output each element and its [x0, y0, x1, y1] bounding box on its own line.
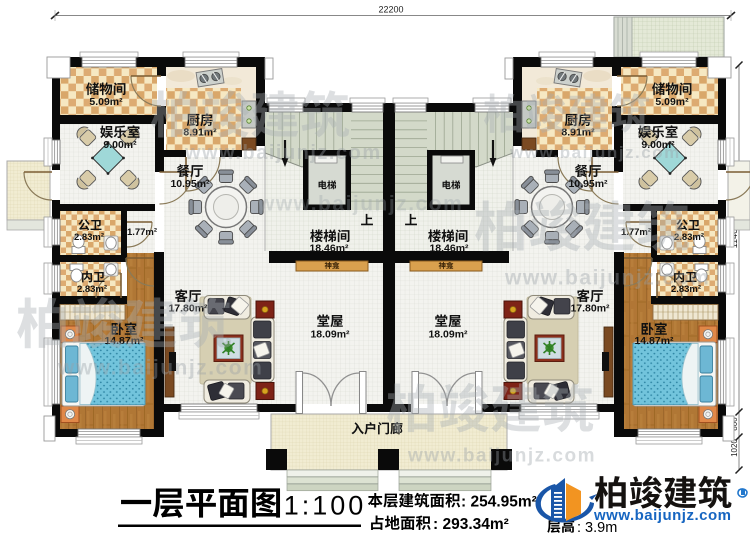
svg-text:18.09m²: 18.09m² — [428, 329, 468, 341]
svg-text:www.baijunjz.com: www.baijunjz.com — [257, 192, 463, 215]
svg-text:18.46m²: 18.46m² — [309, 243, 349, 255]
svg-text:2.83m²: 2.83m² — [77, 284, 107, 295]
svg-text:: 254.95m²: : 254.95m² — [461, 493, 537, 510]
svg-text:17.80m²: 17.80m² — [570, 303, 610, 315]
svg-text:: 293.34m²: : 293.34m² — [433, 516, 509, 533]
svg-text:1.77m²: 1.77m² — [127, 227, 157, 238]
svg-text:5.09m²: 5.09m² — [655, 96, 689, 108]
svg-text:10.95m²: 10.95m² — [170, 178, 210, 190]
svg-text:2.83m²: 2.83m² — [74, 232, 104, 243]
svg-text:www.baijunjz.com: www.baijunjz.com — [407, 446, 596, 467]
svg-text:9.00m²: 9.00m² — [103, 139, 137, 151]
svg-text:1:100: 1:100 — [284, 491, 367, 521]
svg-text:www.baijunjz.com: www.baijunjz.com — [593, 507, 731, 524]
svg-text:www.baijunjz.com: www.baijunjz.com — [504, 266, 710, 289]
svg-text:10.95m²: 10.95m² — [568, 178, 608, 190]
svg-text:www.baijunjz.com: www.baijunjz.com — [184, 142, 382, 164]
svg-text:14.87m²: 14.87m² — [634, 335, 674, 347]
svg-text:5.09m²: 5.09m² — [89, 96, 123, 108]
svg-text:18.09m²: 18.09m² — [310, 329, 350, 341]
svg-text:22200: 22200 — [378, 5, 403, 15]
svg-text:www.baijunjz.com: www.baijunjz.com — [57, 356, 263, 379]
svg-text:www.baijunjz.com: www.baijunjz.com — [509, 143, 681, 162]
svg-text:18.46m²: 18.46m² — [429, 243, 469, 255]
